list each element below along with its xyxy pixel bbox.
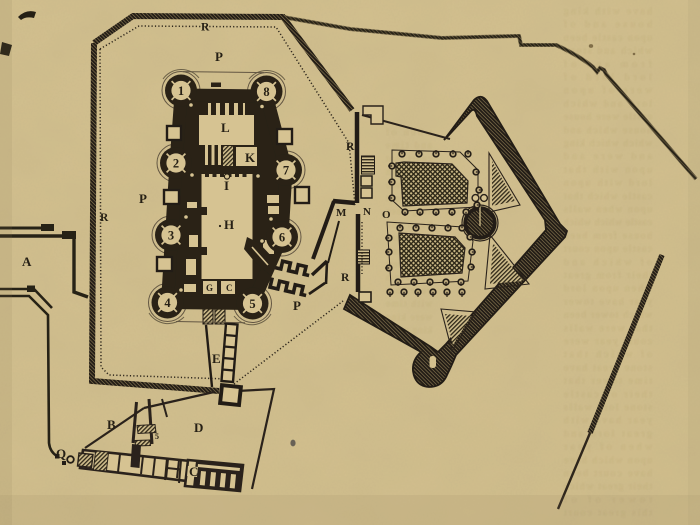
svg-text:E: E <box>212 351 221 366</box>
svg-text:castle which which: castle which which <box>564 218 652 228</box>
svg-text:M: M <box>336 207 347 219</box>
svg-text:B: B <box>107 417 116 432</box>
svg-text:2: 2 <box>173 157 179 171</box>
svg-text:O: O <box>382 209 391 221</box>
svg-text:upon when walls: upon when walls <box>564 205 652 215</box>
svg-text:K: K <box>245 150 256 165</box>
svg-text:upon castle been: upon castle been <box>564 33 652 43</box>
svg-text:and time: and time <box>386 140 432 150</box>
svg-text:5: 5 <box>155 432 159 441</box>
svg-text:house which and: house which and <box>564 126 652 136</box>
svg-text:great lord and: great lord and <box>564 429 652 439</box>
svg-text:4: 4 <box>164 296 171 310</box>
svg-text:Q: Q <box>56 446 66 461</box>
svg-text:were king: were king <box>386 312 433 322</box>
svg-text:year have with: year have with <box>564 416 652 426</box>
svg-text:C: C <box>226 283 233 293</box>
svg-text:A: A <box>22 254 32 269</box>
svg-text:3: 3 <box>168 229 174 243</box>
svg-text:1: 1 <box>178 84 184 98</box>
svg-text:P: P <box>293 298 301 313</box>
svg-text:R: R <box>341 272 350 284</box>
svg-text:6: 6 <box>279 231 285 245</box>
svg-text:L: L <box>221 120 230 135</box>
svg-text:their from great: their from great <box>564 270 652 281</box>
svg-text:I: I <box>224 178 229 193</box>
svg-text:7: 7 <box>283 164 289 178</box>
svg-text:8: 8 <box>263 85 269 99</box>
svg-text:castle which that: castle which that <box>564 192 652 202</box>
svg-text:that were walls: that were walls <box>564 324 652 334</box>
svg-text:R: R <box>346 141 355 153</box>
svg-text:have court been: have court been <box>564 469 652 479</box>
svg-text:D: D <box>194 420 203 435</box>
svg-text:C: C <box>189 464 198 479</box>
svg-text:P: P <box>139 191 147 206</box>
svg-text:stone great have: stone great have <box>564 363 652 373</box>
svg-text:house from been: house from been <box>564 230 652 241</box>
svg-text:N: N <box>363 206 371 218</box>
svg-text:R: R <box>100 212 109 224</box>
svg-text:G: G <box>206 283 213 293</box>
svg-text:R: R <box>201 22 210 34</box>
svg-text:5: 5 <box>249 297 255 311</box>
svg-text:P: P <box>215 49 223 64</box>
svg-text:castle upon court: castle upon court <box>564 245 652 255</box>
svg-text:court year were: court year were <box>564 337 652 347</box>
svg-text:when upon lord: when upon lord <box>564 284 652 294</box>
svg-text:stone lord walls: stone lord walls <box>564 403 652 413</box>
svg-text:H: H <box>224 217 234 232</box>
